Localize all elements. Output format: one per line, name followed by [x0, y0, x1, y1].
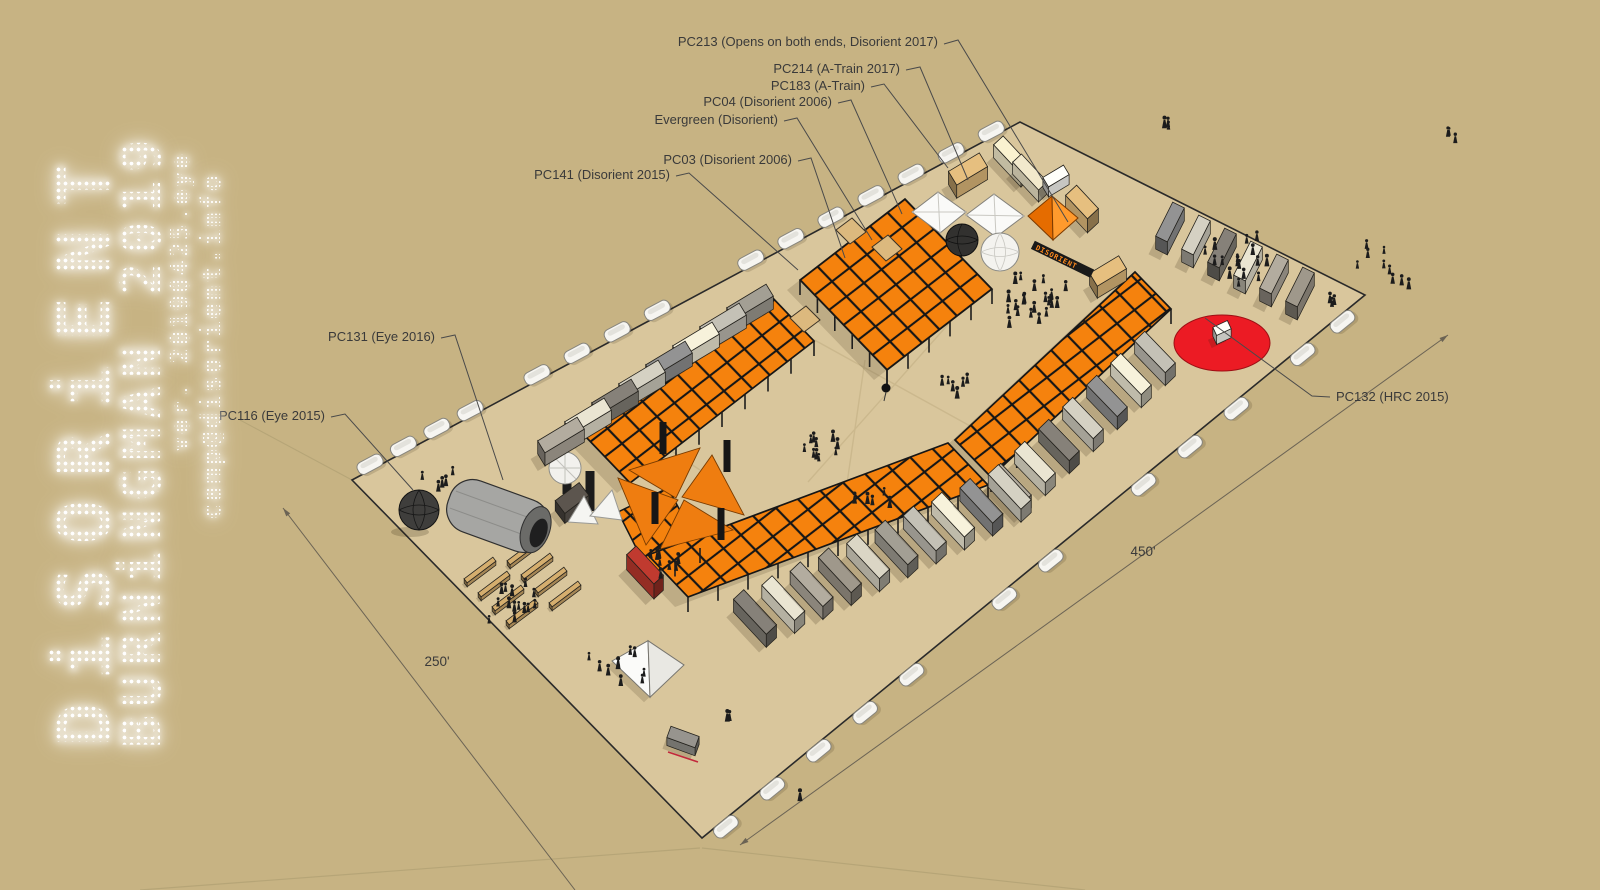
- label-text-pc141: PC141 (Disorient 2015): [534, 167, 670, 182]
- logo-line-3: ver. 20190425.eye: [168, 152, 194, 452]
- disorient-camp-plan: { "title": "Disorient Burningman 2019 ca…: [0, 0, 1600, 890]
- label-text-evergreen: Evergreen (Disorient): [654, 112, 778, 127]
- label-text-pc132: PC132 (HRC 2015): [1336, 389, 1449, 404]
- label-text-pc04: PC04 (Disorient 2006): [703, 94, 832, 109]
- logo: DiSORiENT DiSORiENT BURNiNGMAN 2019 BURN…: [0, 0, 240, 890]
- logo-line-4: camp@disorient.info: [198, 173, 225, 520]
- white-geodesic-dome: [981, 233, 1019, 271]
- logo-line-2: BURNiNGMAN 2019: [114, 131, 169, 748]
- label-text-pc213: PC213 (Opens on both ends, Disorient 201…: [678, 34, 938, 49]
- label-text-pc183: PC183 (A-Train): [771, 78, 865, 93]
- camp-map: 450'250'DISORIENTPC213 (Opens on both en…: [0, 0, 1600, 890]
- scaffold-tower: [652, 492, 659, 524]
- label-text-pc131: PC131 (Eye 2016): [328, 329, 435, 344]
- dimension-text-d450: 450': [1130, 544, 1155, 559]
- sphere-sculpture: [882, 384, 891, 393]
- dimension-text-d250: 250': [424, 654, 449, 669]
- dark-dome-courtyard: [946, 224, 978, 256]
- label-text-pc214: PC214 (A-Train 2017): [773, 61, 900, 76]
- scaffold-tower: [724, 440, 731, 472]
- label-text-pc03: PC03 (Disorient 2006): [663, 152, 792, 167]
- scaffold-tower: [718, 508, 725, 540]
- scaffold-tower: [660, 422, 667, 454]
